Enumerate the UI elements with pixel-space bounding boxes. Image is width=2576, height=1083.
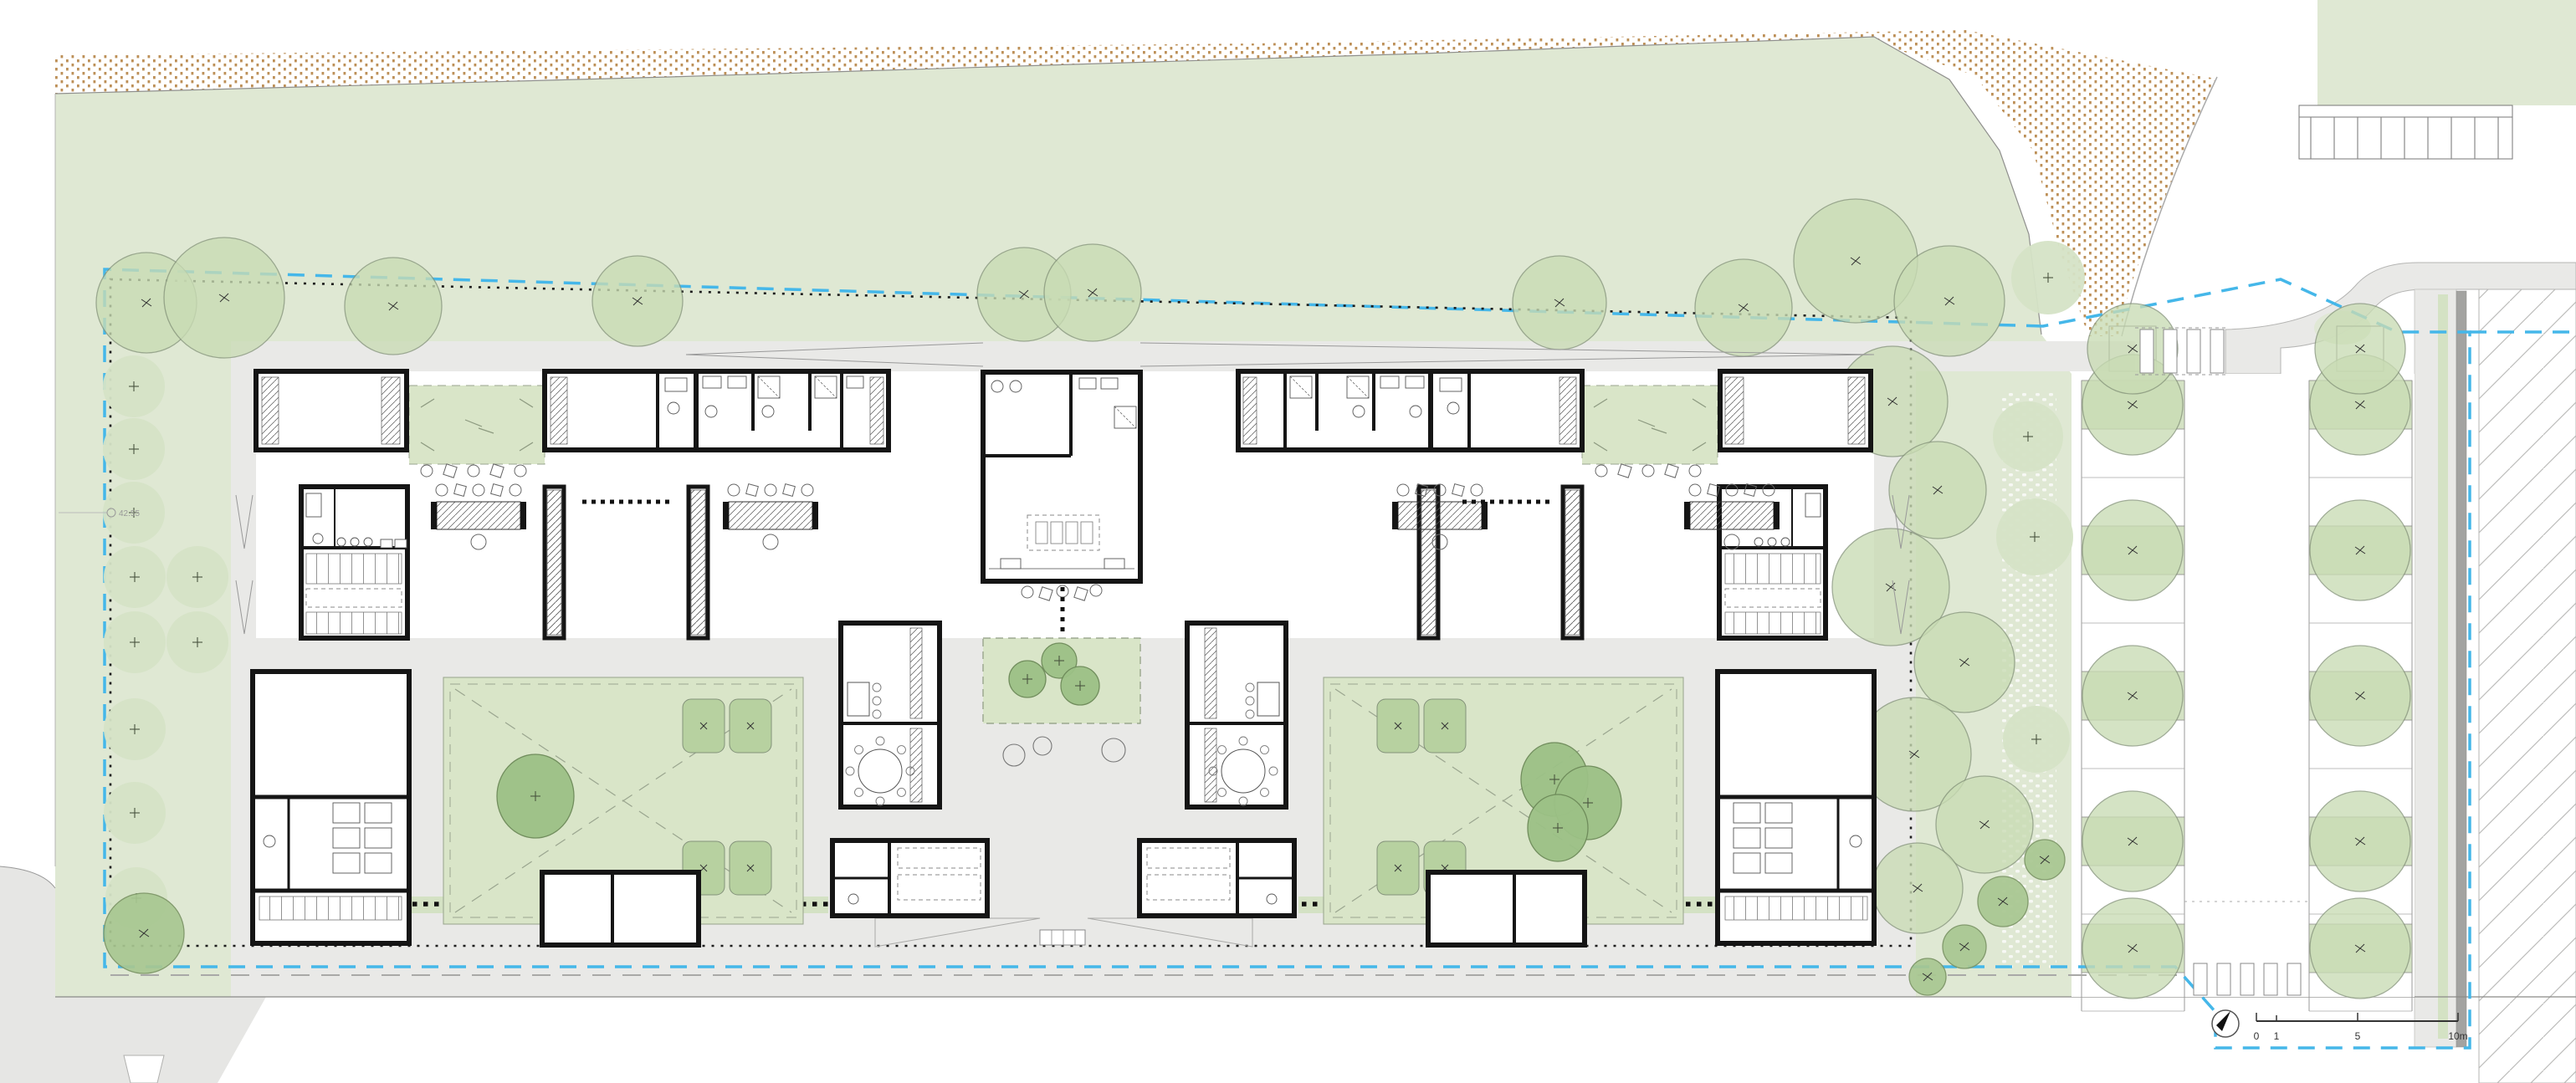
locker-row (1725, 897, 1867, 920)
doormat-dot (638, 500, 642, 504)
boundary-wall (2456, 291, 2466, 1047)
doormat-dot (1481, 500, 1485, 504)
closet-hatch (910, 728, 922, 802)
path-dot (1686, 902, 1691, 907)
fixture (333, 803, 360, 823)
walk-dot (1061, 627, 1065, 631)
closet-hatch (910, 628, 922, 718)
bench-cap (723, 502, 729, 529)
fixture (333, 853, 360, 873)
path-dot (412, 902, 417, 907)
doormat-dot (656, 500, 660, 504)
doormat-dot (582, 500, 586, 504)
entrance-steps (1040, 930, 1085, 945)
scale-bar-label: 10m (2448, 1030, 2467, 1042)
doormat-dot (592, 500, 596, 504)
locker-row (306, 612, 402, 634)
scale-bar-label: 0 (2254, 1030, 2260, 1042)
path-dot (1313, 902, 1318, 907)
traffic-island (124, 1055, 164, 1083)
path-dot (1302, 902, 1307, 907)
bench-cap (812, 502, 818, 529)
closet-hatch (547, 490, 561, 635)
crosswalk-bar (2217, 963, 2230, 995)
bench-cap (431, 502, 437, 529)
scale-bar-label: 5 (2355, 1030, 2361, 1042)
fixture (1765, 803, 1792, 823)
doormat-dot (619, 500, 623, 504)
wardrobe-bench (729, 502, 812, 529)
doormat-dot (647, 500, 651, 504)
closet-hatch (262, 377, 279, 444)
fixture (1440, 378, 1462, 391)
fixture (665, 378, 687, 391)
doormat-dot (610, 500, 614, 504)
wardrobe-bench (1690, 502, 1774, 529)
bench-cap (1392, 502, 1398, 529)
lawn-northeast (2317, 0, 2576, 105)
fixture (365, 803, 392, 823)
doormat-dot (601, 500, 605, 504)
doormat-dot (1499, 500, 1503, 504)
closet-hatch (870, 377, 883, 444)
fixture (333, 828, 360, 848)
locker-row (306, 554, 402, 584)
path-dot (423, 902, 428, 907)
closet-hatch (691, 490, 705, 635)
fixture (1406, 376, 1424, 388)
scale-bar-label: 1 (2274, 1030, 2280, 1042)
fixture (1101, 378, 1118, 389)
site-plan-svg: 42.5501510m (0, 0, 2576, 1083)
walk-dot (1061, 597, 1065, 601)
closet-hatch (1565, 490, 1580, 635)
doormat-dot (1508, 500, 1513, 504)
path-dot (434, 902, 439, 907)
crosswalk-bar (2164, 329, 2177, 373)
doormat-dot (1462, 500, 1467, 504)
fixture (365, 828, 392, 848)
level-label: 42.55 (119, 509, 140, 519)
locker-row (1725, 612, 1821, 634)
fixture (1734, 828, 1760, 848)
building-block (1187, 623, 1286, 807)
fixture (395, 539, 407, 548)
path-dot (1697, 902, 1702, 907)
closet-hatch (1205, 728, 1216, 802)
doormat-dot (1518, 500, 1522, 504)
fixture (1734, 853, 1760, 873)
fixture (1079, 378, 1096, 389)
walk-dot (1061, 587, 1065, 591)
fixture (1765, 828, 1792, 848)
crosswalk-bar (2140, 329, 2153, 373)
bench-cap (1774, 502, 1780, 529)
fixture (847, 376, 863, 388)
doormat-dot (1545, 500, 1549, 504)
path-dot (823, 902, 828, 907)
bench-cap (1684, 502, 1690, 529)
doormat-dot (1536, 500, 1540, 504)
fixture (1805, 493, 1821, 517)
building-block (542, 872, 699, 945)
path-dot (1708, 902, 1713, 907)
doormat-dot (628, 500, 632, 504)
wardrobe-bench (1398, 502, 1482, 529)
crosswalk-bar (2264, 963, 2277, 995)
fixture (1104, 559, 1124, 569)
closet-hatch (382, 377, 400, 444)
closet-hatch (1725, 377, 1744, 444)
building-block (841, 623, 940, 807)
fixture (1765, 853, 1792, 873)
fixture (1001, 559, 1021, 569)
building-block (1238, 371, 1431, 450)
fixture (1380, 376, 1399, 388)
green-strip-east (2438, 294, 2448, 1039)
crosswalk-northeast (2299, 105, 2512, 159)
crosswalk-bar (2210, 329, 2224, 373)
doormat-dot (1527, 500, 1531, 504)
crosswalk-bar (2194, 963, 2207, 995)
neighbor-parcel-hatch (2479, 289, 2576, 1083)
fixture (1734, 803, 1760, 823)
wardrobe-bench (437, 502, 520, 529)
fixture (703, 376, 721, 388)
building-block (1428, 872, 1585, 945)
locker-row (259, 897, 402, 920)
sidewalk-east (2415, 289, 2456, 1047)
fixture (306, 493, 321, 517)
doormat-dot (1472, 500, 1476, 504)
fixture (365, 853, 392, 873)
doormat-dot (1490, 500, 1494, 504)
doormat-dot (665, 500, 669, 504)
site-plan-canvas: 42.5501510m (0, 0, 2576, 1083)
closet-hatch (1243, 377, 1257, 444)
walk-dot (1061, 617, 1065, 621)
walk-dot (1061, 607, 1065, 611)
closet-hatch (551, 377, 567, 444)
fixture (728, 376, 746, 388)
fixture (381, 539, 392, 548)
path-dot (812, 902, 817, 907)
bench-cap (1482, 502, 1488, 529)
closet-hatch (1848, 377, 1865, 444)
closet-hatch (1205, 628, 1216, 718)
crosswalk-bar (2241, 963, 2254, 995)
north-arrow-circle (2212, 1010, 2239, 1037)
crosswalk-bar (2187, 329, 2200, 373)
pavement-west (231, 371, 256, 638)
closet-hatch (1559, 377, 1576, 444)
crosswalk-bar (2287, 963, 2301, 995)
locker-row (1725, 554, 1821, 584)
bench-cap (520, 502, 526, 529)
